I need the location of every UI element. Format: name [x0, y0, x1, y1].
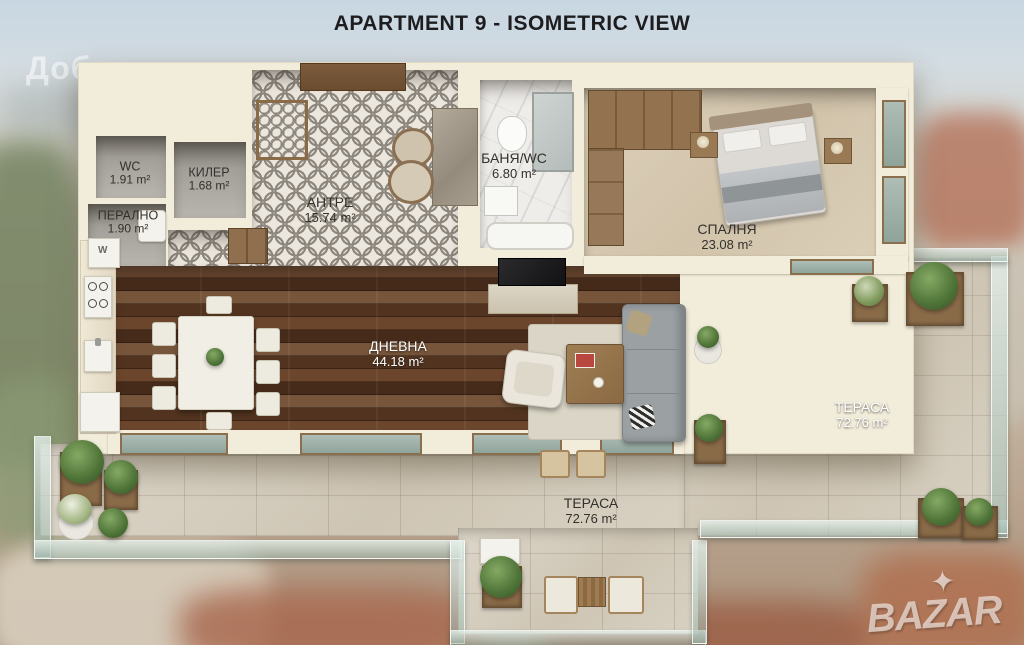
dining-chair-head: [206, 296, 232, 314]
lamp-right: [831, 142, 843, 154]
fridge: [80, 392, 120, 432]
cooktop: [84, 276, 112, 318]
dining-chair-4: [256, 328, 280, 352]
sofa-cushion-line-1: [627, 349, 679, 350]
terrace-plant-sw-2: [104, 460, 138, 494]
label-kiler: КИЛЕР 1.68 m²: [188, 165, 229, 192]
label-terasa-bottom: ТЕРАСА 72.76 m²: [564, 496, 618, 526]
bathtub: [486, 222, 574, 250]
dining-chair-1: [152, 322, 176, 346]
glass-railing-bottom-left: [34, 540, 462, 559]
armchair-seat: [513, 361, 555, 397]
label-terasa-right: ТЕРАСА 72.76 m²: [835, 400, 889, 430]
burner-3: [88, 299, 97, 308]
glass-railing-right: [991, 256, 1008, 534]
floor-plan-canvas: APARTMENT 9 - ISOMETRIC VIEW Добрев: [0, 0, 1024, 645]
label-antre: АНТРЕ 15.74 m²: [304, 195, 355, 225]
bedroom-window-east-1: [882, 100, 906, 168]
bedroom-window-south: [790, 259, 874, 275]
kitchen-sink: [84, 340, 112, 372]
terrace-bush-ball: [98, 508, 128, 538]
bg-rooftop-1: [180, 588, 480, 645]
glass-railing-extension-right: [692, 540, 707, 644]
entry-doormat: [256, 100, 308, 160]
wardrobe-side: [588, 148, 624, 246]
terrace-plant-sw-1: [60, 440, 104, 484]
table-centerpiece-plant: [206, 348, 224, 366]
washing-machine-label: W: [98, 245, 107, 256]
bg-rooftop-right: [915, 112, 1024, 252]
lounge-chair-2: [608, 576, 644, 614]
label-banya: БАНЯ/WC 6.80 m²: [481, 151, 547, 181]
armchair: [501, 349, 567, 410]
label-wc: WC 1.91 m²: [110, 159, 151, 186]
bedroom-window-east-2: [882, 176, 906, 244]
glass-railing-extension-left: [450, 540, 465, 644]
bazar-text: BAZAR: [865, 588, 1003, 642]
sofa-cushion-line-2: [627, 393, 679, 394]
label-spalnya: СПАЛНЯ 23.08 m²: [697, 222, 756, 252]
terrace-plant-se-2: [965, 498, 993, 526]
terrace-pot-plant: [697, 326, 719, 348]
extension-side-table: [578, 577, 606, 607]
extension-bush: [480, 556, 522, 598]
hall-closet: [228, 228, 268, 264]
coffee-table: [566, 344, 624, 404]
label-peralno: ПЕРАЛНО 1.90 m²: [98, 208, 158, 235]
burner-2: [99, 282, 108, 291]
bed: [711, 107, 827, 226]
watermark-bazar: ✦ BAZAR: [864, 566, 1018, 642]
lamp-left: [697, 136, 709, 148]
label-dnevna: ДНЕВНА 44.18 m²: [369, 339, 427, 369]
terrace-plant-se-1: [922, 488, 960, 526]
terrace-plant-ne-small: [854, 276, 884, 306]
toilet: [497, 116, 527, 152]
tv: [498, 258, 566, 286]
hall-mirror-closet: [432, 108, 478, 206]
burner-1: [88, 282, 97, 291]
terrace-plant-mid: [695, 414, 723, 442]
glass-railing-extension-bottom: [450, 630, 706, 645]
washing-machine: W: [88, 238, 120, 268]
faucet: [95, 338, 101, 346]
terrace-flowers-white: [58, 494, 92, 524]
bathroom-sink: [484, 186, 518, 216]
sliding-window-1: [120, 433, 228, 455]
dining-chair-6: [256, 392, 280, 416]
outdoor-chair-1: [540, 450, 570, 478]
hall-tub-chair-2: [388, 160, 434, 204]
lounge-chair-1: [544, 576, 578, 614]
page-title: APARTMENT 9 - ISOMETRIC VIEW: [0, 12, 1024, 36]
dining-chair-3: [152, 386, 176, 410]
bed-pillow-left: [722, 128, 762, 153]
coffee-cup: [593, 377, 604, 388]
sliding-window-2: [300, 433, 422, 455]
dining-chair-foot: [206, 412, 232, 430]
tv-console: [488, 284, 578, 314]
bed-pillow-right: [767, 122, 807, 147]
outdoor-chair-2: [576, 450, 606, 478]
dining-chair-2: [152, 354, 176, 378]
glass-railing-top-right: [906, 248, 1008, 262]
coffee-table-book: [575, 353, 595, 368]
entrance-door: [300, 63, 406, 91]
dining-chair-5: [256, 360, 280, 384]
wardrobe-top: [588, 90, 702, 150]
burner-4: [99, 299, 108, 308]
terrace-plant-ne-large: [910, 262, 958, 310]
